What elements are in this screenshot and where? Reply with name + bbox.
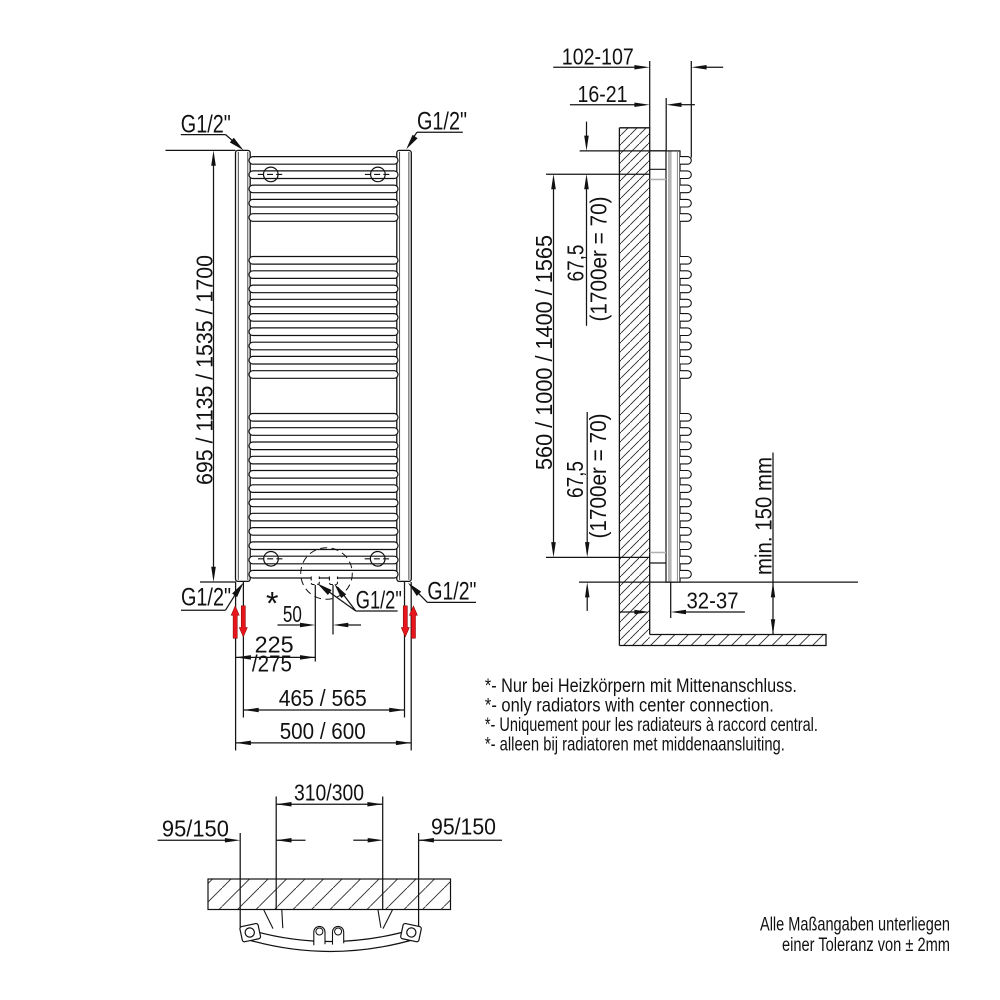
svg-text:560 / 1000 / 1400 / 1565: 560 / 1000 / 1400 / 1565 xyxy=(531,235,557,470)
svg-text:/275: /275 xyxy=(252,651,292,677)
svg-text:(1700er = 70): (1700er = 70) xyxy=(586,197,612,322)
svg-text:95/150: 95/150 xyxy=(162,816,229,842)
svg-text:*- alleen bij radiatoren met m: *- alleen bij radiatoren met middenaansl… xyxy=(485,734,785,756)
svg-text:(1700er = 70): (1700er = 70) xyxy=(585,414,611,539)
svg-text:16-21: 16-21 xyxy=(578,81,628,107)
svg-text:695 / 1135 / 1535 / 1700: 695 / 1135 / 1535 / 1700 xyxy=(192,255,218,485)
svg-text:G1/2": G1/2" xyxy=(356,587,402,615)
svg-text:310/300: 310/300 xyxy=(294,780,364,806)
svg-text:G1/2": G1/2" xyxy=(417,108,467,136)
svg-text:50: 50 xyxy=(283,601,302,627)
svg-text:500 / 600: 500 / 600 xyxy=(280,718,366,744)
svg-text:G1/2": G1/2" xyxy=(427,578,476,606)
svg-text:32-37: 32-37 xyxy=(687,588,739,614)
svg-text:G1/2": G1/2" xyxy=(181,584,231,612)
svg-text:min. 150 mm: min. 150 mm xyxy=(751,457,777,575)
svg-text:465 / 565: 465 / 565 xyxy=(279,685,367,711)
svg-text:*: * xyxy=(266,586,278,622)
svg-text:Alle Maßangaben unterliegen: Alle Maßangaben unterliegen xyxy=(760,914,950,936)
svg-text:102-107: 102-107 xyxy=(562,44,634,70)
svg-text:95/150: 95/150 xyxy=(431,814,496,840)
svg-text:einer Toleranz von ± 2mm: einer Toleranz von ± 2mm xyxy=(782,934,950,956)
